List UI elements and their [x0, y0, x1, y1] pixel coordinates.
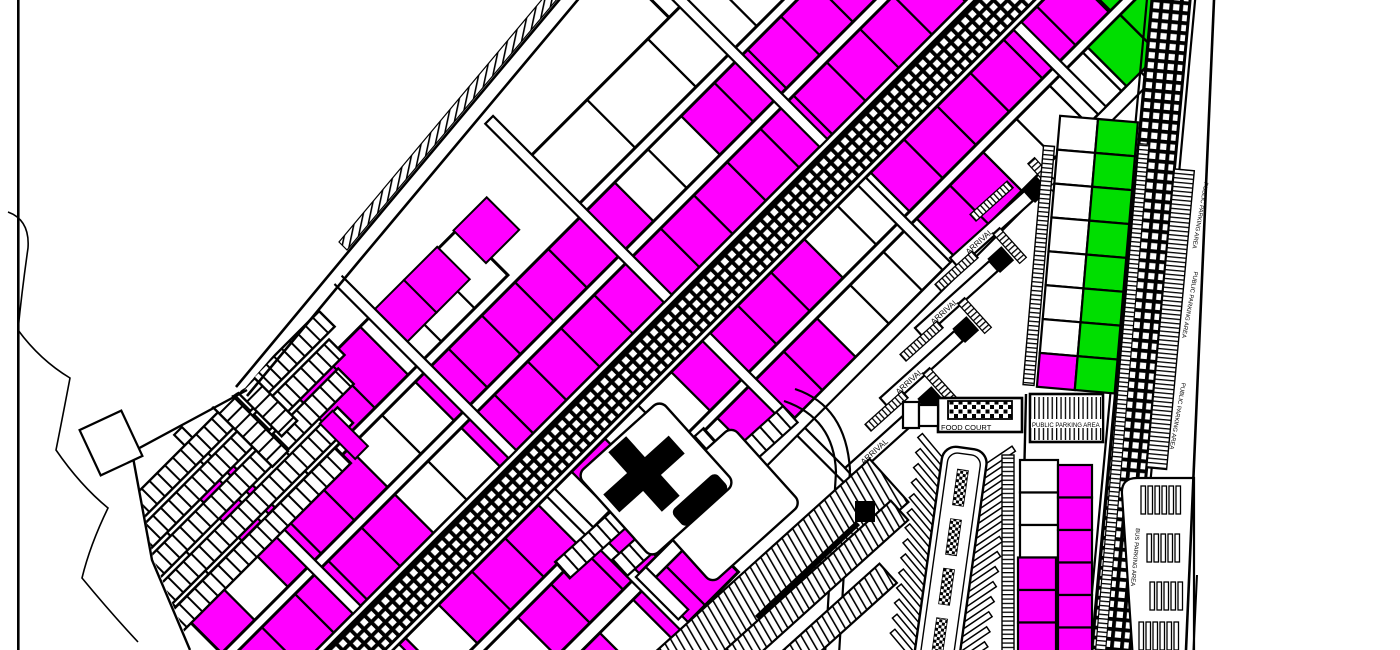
svg-text:PUBLIC PARKING AREA: PUBLIC PARKING AREA	[1032, 423, 1100, 429]
svg-text:FOOD COURT: FOOD COURT	[941, 423, 992, 432]
